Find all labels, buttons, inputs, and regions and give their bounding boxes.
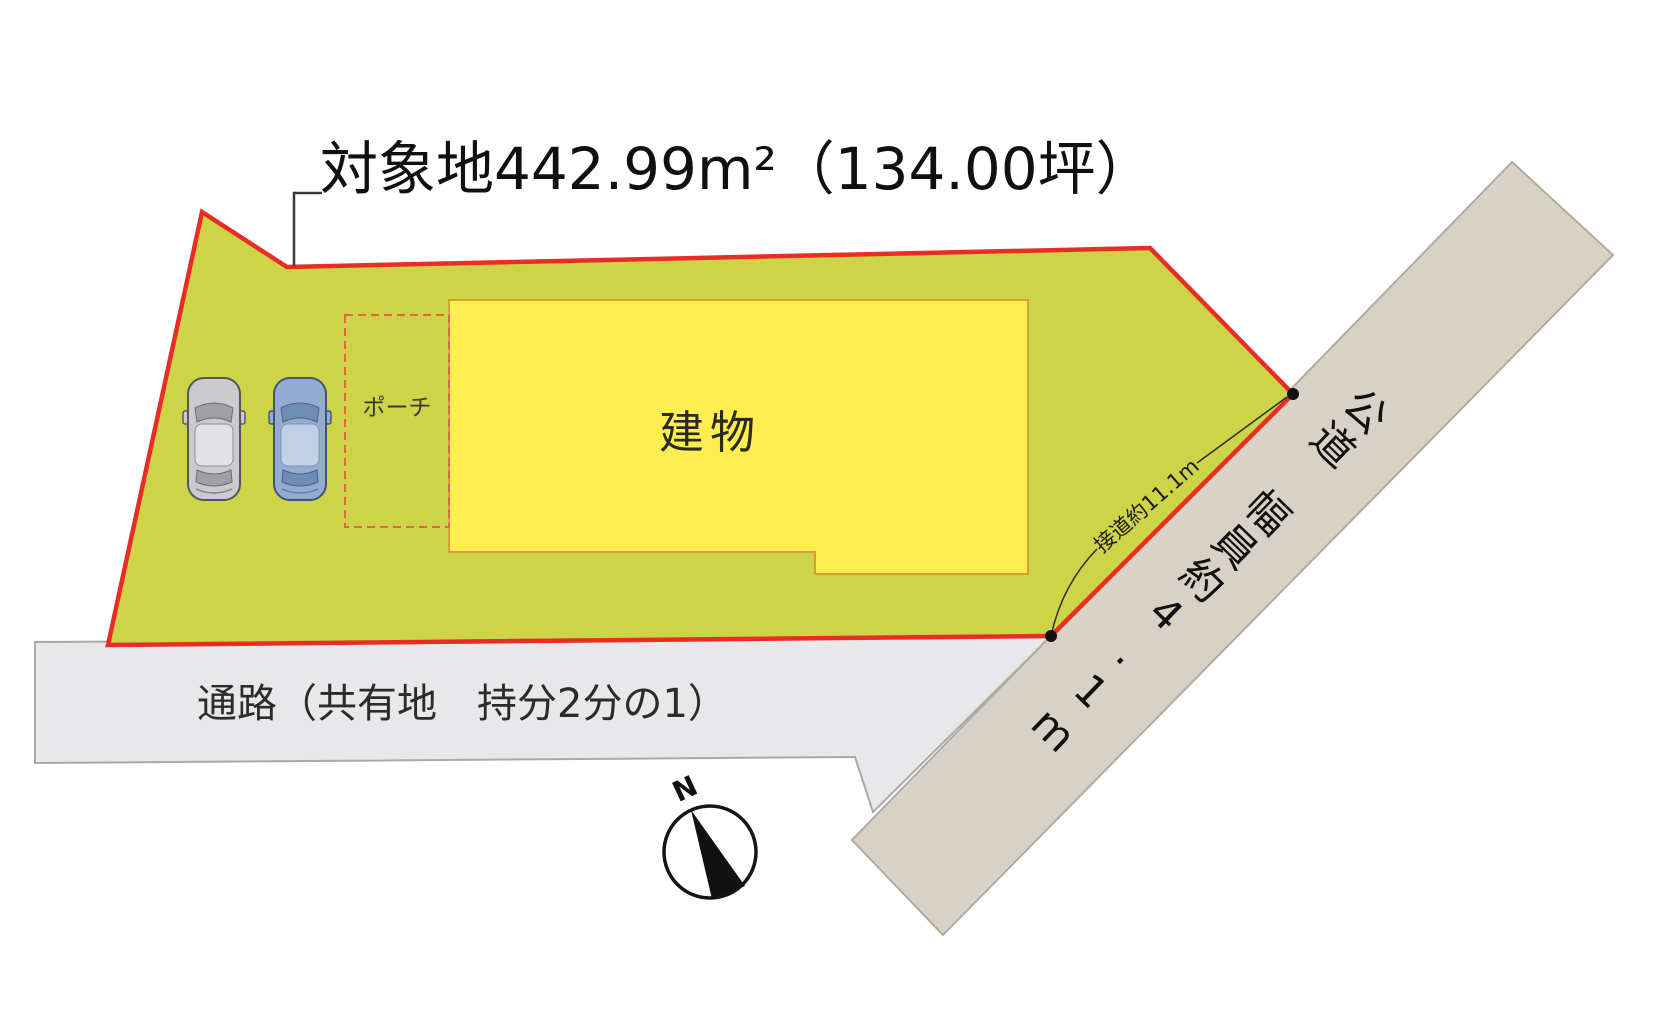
page-title: 対象地442.99m²（134.00坪） (320, 122, 1154, 206)
boundary-point-lower (1045, 630, 1057, 642)
porch-label: ポーチ (363, 388, 432, 422)
building-label: 建物 (659, 396, 761, 461)
site-plan-diagram: 対象地442.99m²（134.00坪） 建物 ポーチ 通路（共有地 持分2分の… (0, 0, 1678, 1024)
title-leader-line (294, 193, 322, 266)
car-icon-blue (269, 378, 331, 500)
compass-icon (664, 806, 756, 899)
boundary-point-upper (1287, 388, 1299, 400)
car-icon-gray (183, 378, 245, 500)
passage-label: 通路（共有地 持分2分の1） (197, 671, 728, 729)
